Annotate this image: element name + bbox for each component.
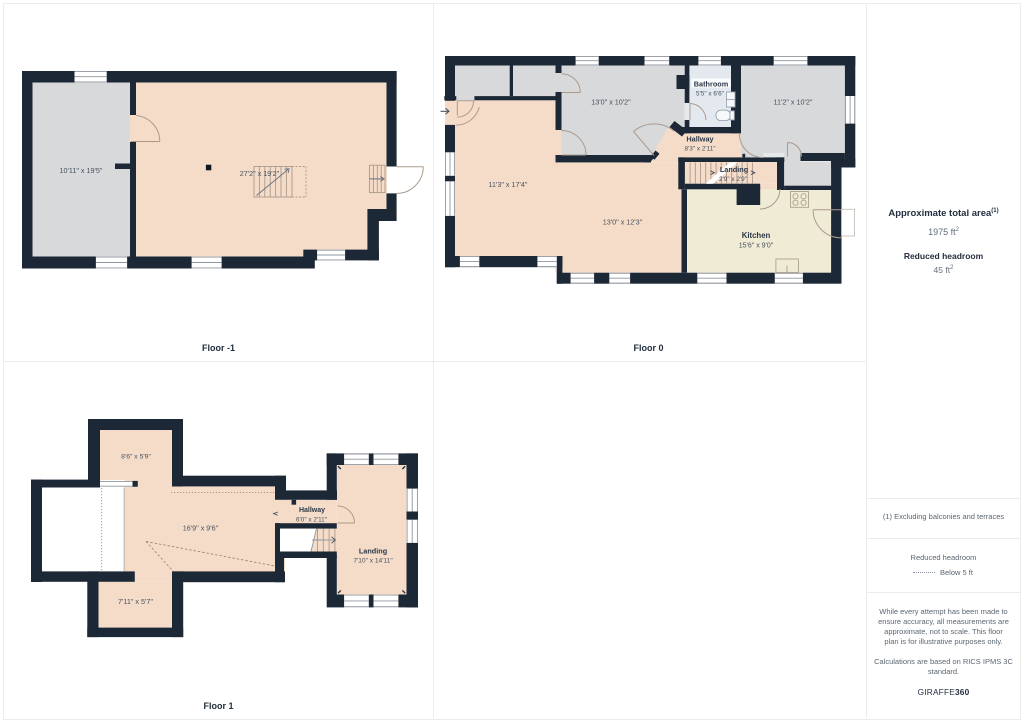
- svg-text:11'2" x 10'2": 11'2" x 10'2": [774, 98, 813, 107]
- svg-text:7'10" x 14'11": 7'10" x 14'11": [353, 558, 393, 565]
- svg-text:Kitchen: Kitchen: [742, 231, 771, 240]
- svg-text:Bathroom: Bathroom: [694, 80, 729, 89]
- svg-text:27'2" x 19'2": 27'2" x 19'2": [240, 169, 280, 178]
- svg-text:15'6" x 9'0": 15'6" x 9'0": [739, 243, 774, 250]
- svg-text:8'3" x 2'11": 8'3" x 2'11": [684, 146, 715, 153]
- svg-text:Hallway: Hallway: [686, 135, 714, 144]
- svg-text:Hallway: Hallway: [299, 507, 325, 514]
- svg-text:6'0" x 2'11": 6'0" x 2'11": [296, 517, 327, 524]
- svg-text:5'5" x 6'6": 5'5" x 6'6": [696, 91, 724, 98]
- svg-text:7'11" x 5'7": 7'11" x 5'7": [118, 597, 153, 606]
- svg-text:8'6" x 5'9": 8'6" x 5'9": [121, 454, 151, 461]
- svg-text:2'9" x 2'9": 2'9" x 2'9": [719, 176, 747, 183]
- svg-text:13'0" x 12'3": 13'0" x 12'3": [603, 218, 643, 227]
- svg-text:Landing: Landing: [359, 547, 387, 556]
- svg-text:13'0" x 10'2": 13'0" x 10'2": [591, 98, 631, 107]
- svg-text:16'9" x 9'6": 16'9" x 9'6": [183, 524, 219, 533]
- svg-text:10'11" x 19'5": 10'11" x 19'5": [60, 166, 103, 175]
- svg-text:Landing: Landing: [720, 165, 748, 174]
- svg-text:11'3" x 17'4": 11'3" x 17'4": [489, 180, 528, 189]
